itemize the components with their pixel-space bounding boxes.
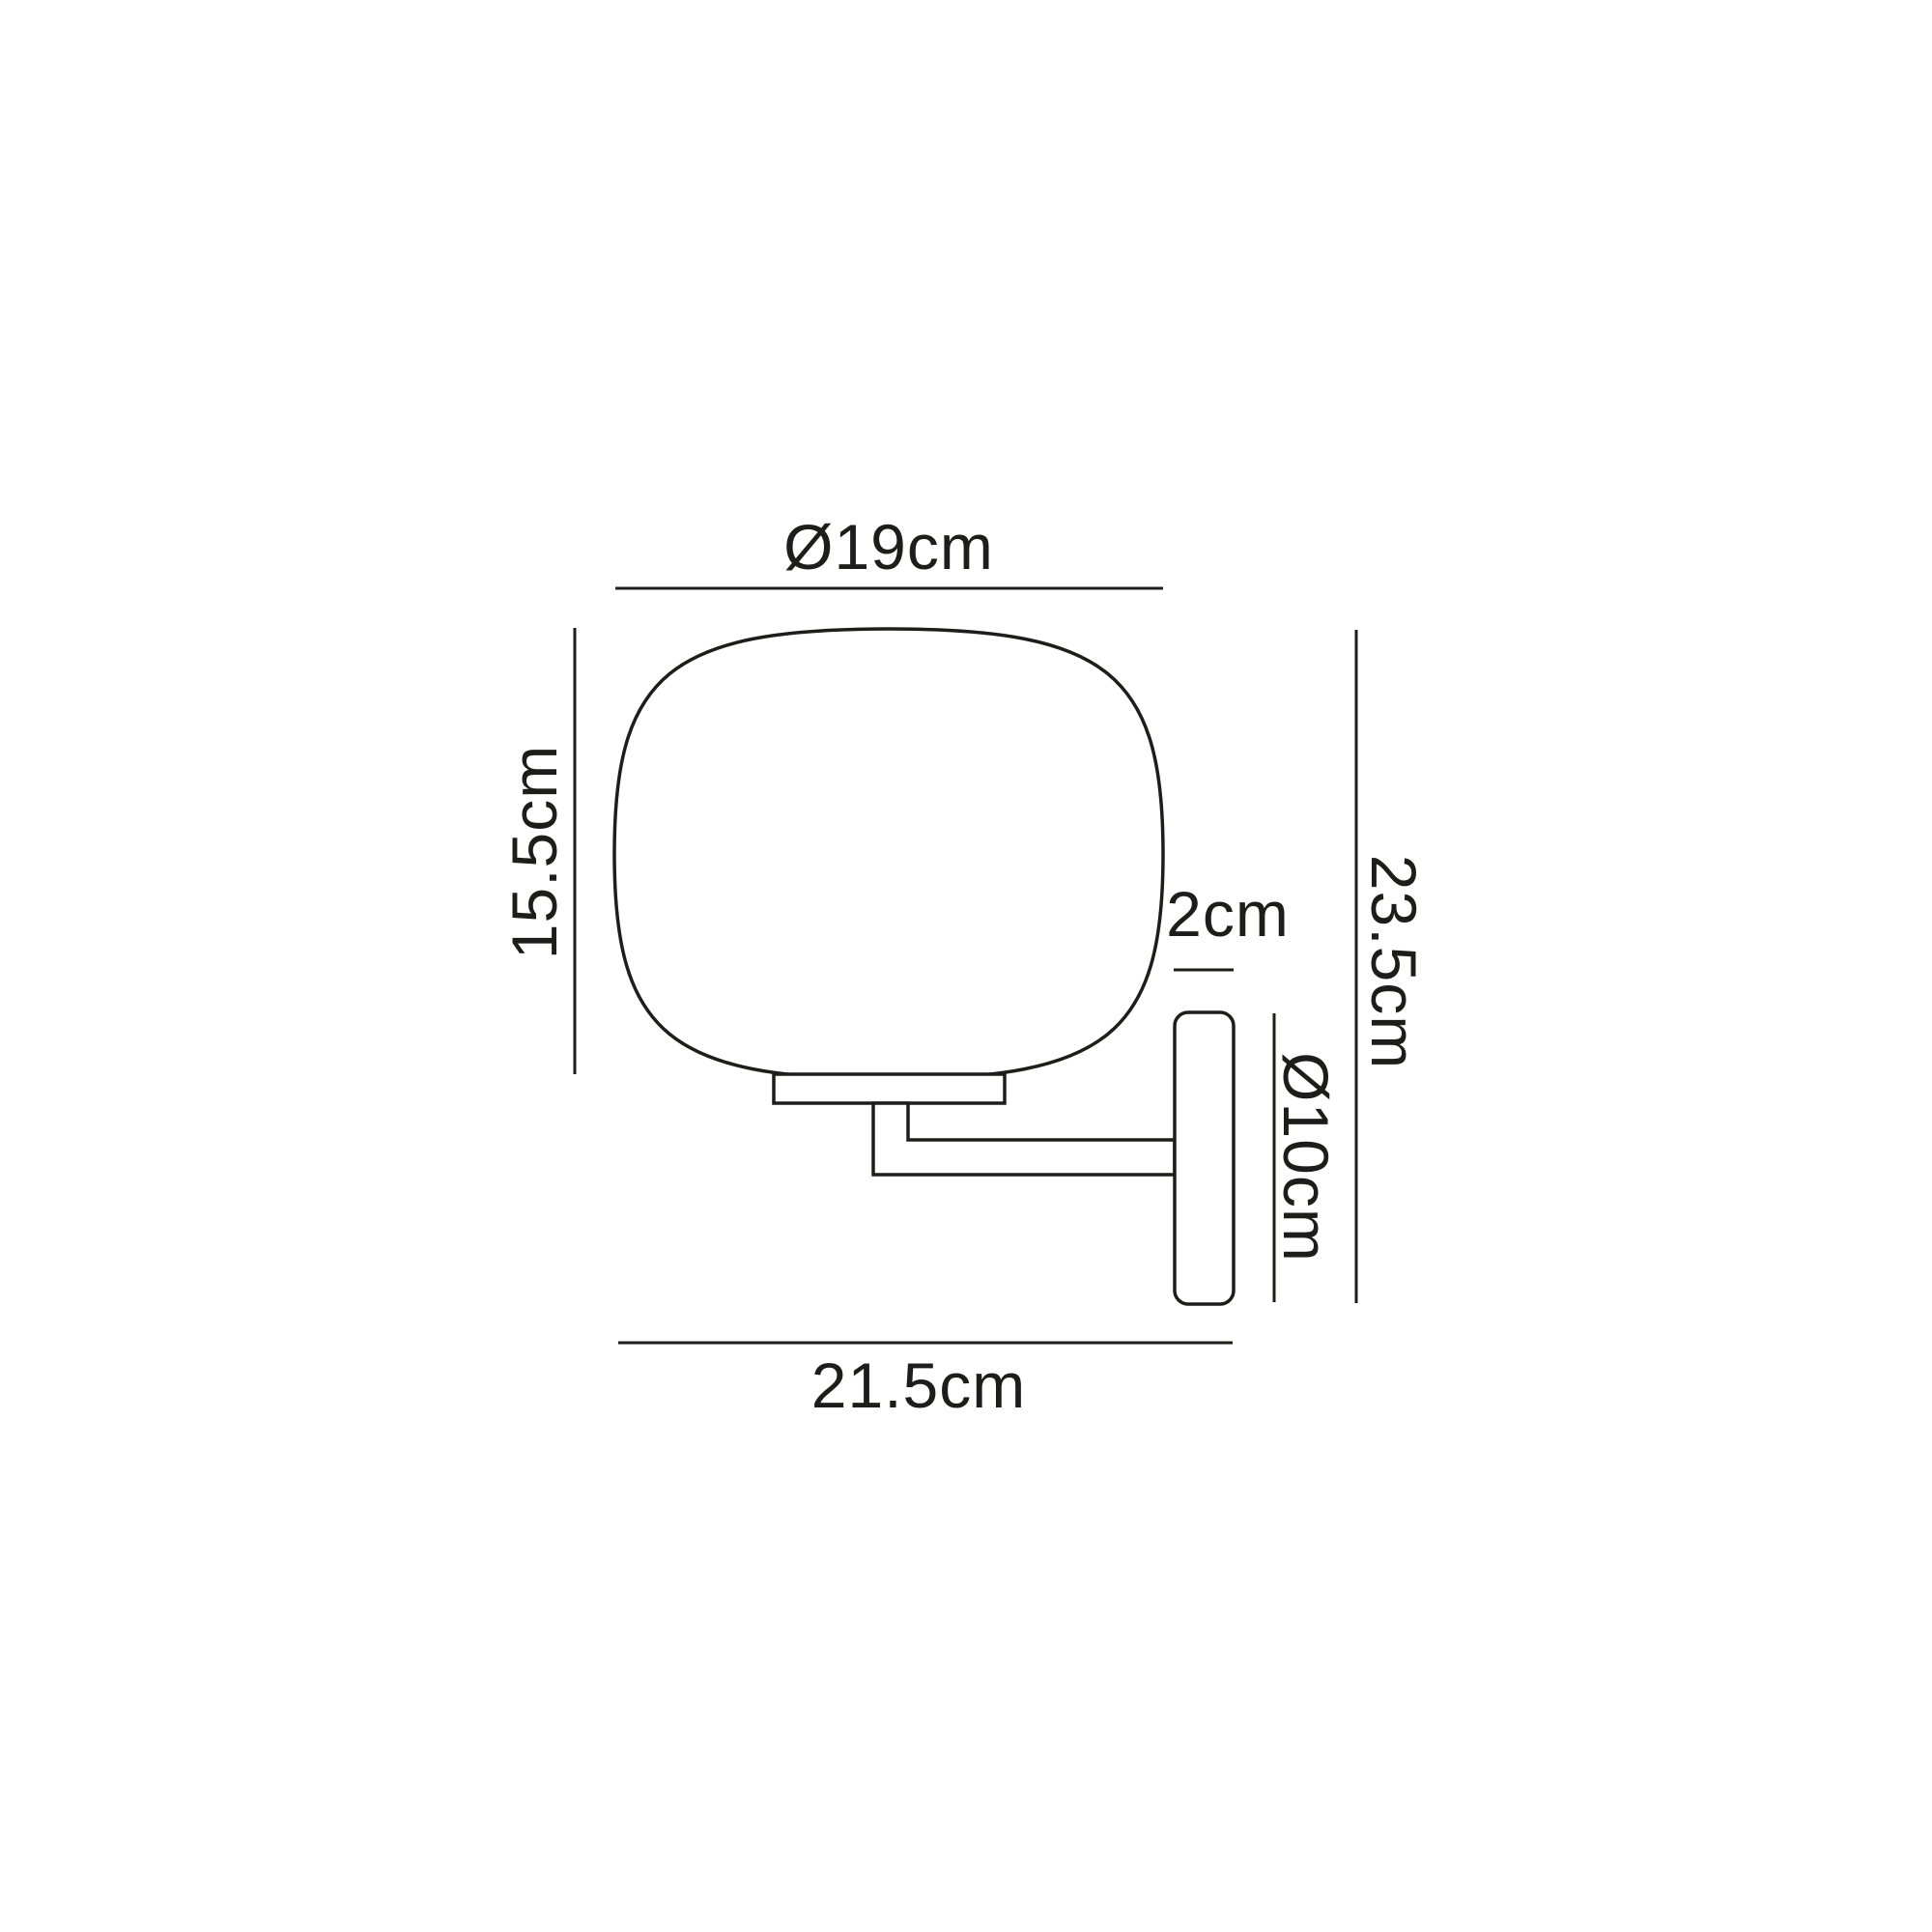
label-overall-depth: 21.5cm bbox=[811, 1350, 1026, 1421]
label-shade-diameter: Ø19cm bbox=[783, 511, 994, 582]
lamp-shade-outline bbox=[614, 629, 1163, 1079]
label-backplate-depth: 2cm bbox=[1166, 878, 1290, 950]
label-overall-height: 23.5cm bbox=[1358, 855, 1430, 1069]
shade-collar bbox=[774, 1074, 1005, 1103]
label-shade-height: 15.5cm bbox=[498, 745, 570, 959]
label-backplate-diameter: Ø10cm bbox=[1270, 1052, 1342, 1263]
diagram-canvas: Ø19cm 15.5cm 2cm 23.5cm Ø10cm 21.5cm bbox=[0, 0, 1932, 1932]
wall-lamp-dimension-diagram: Ø19cm 15.5cm 2cm 23.5cm Ø10cm 21.5cm bbox=[0, 0, 1932, 1932]
wall-backplate bbox=[1175, 1012, 1234, 1304]
